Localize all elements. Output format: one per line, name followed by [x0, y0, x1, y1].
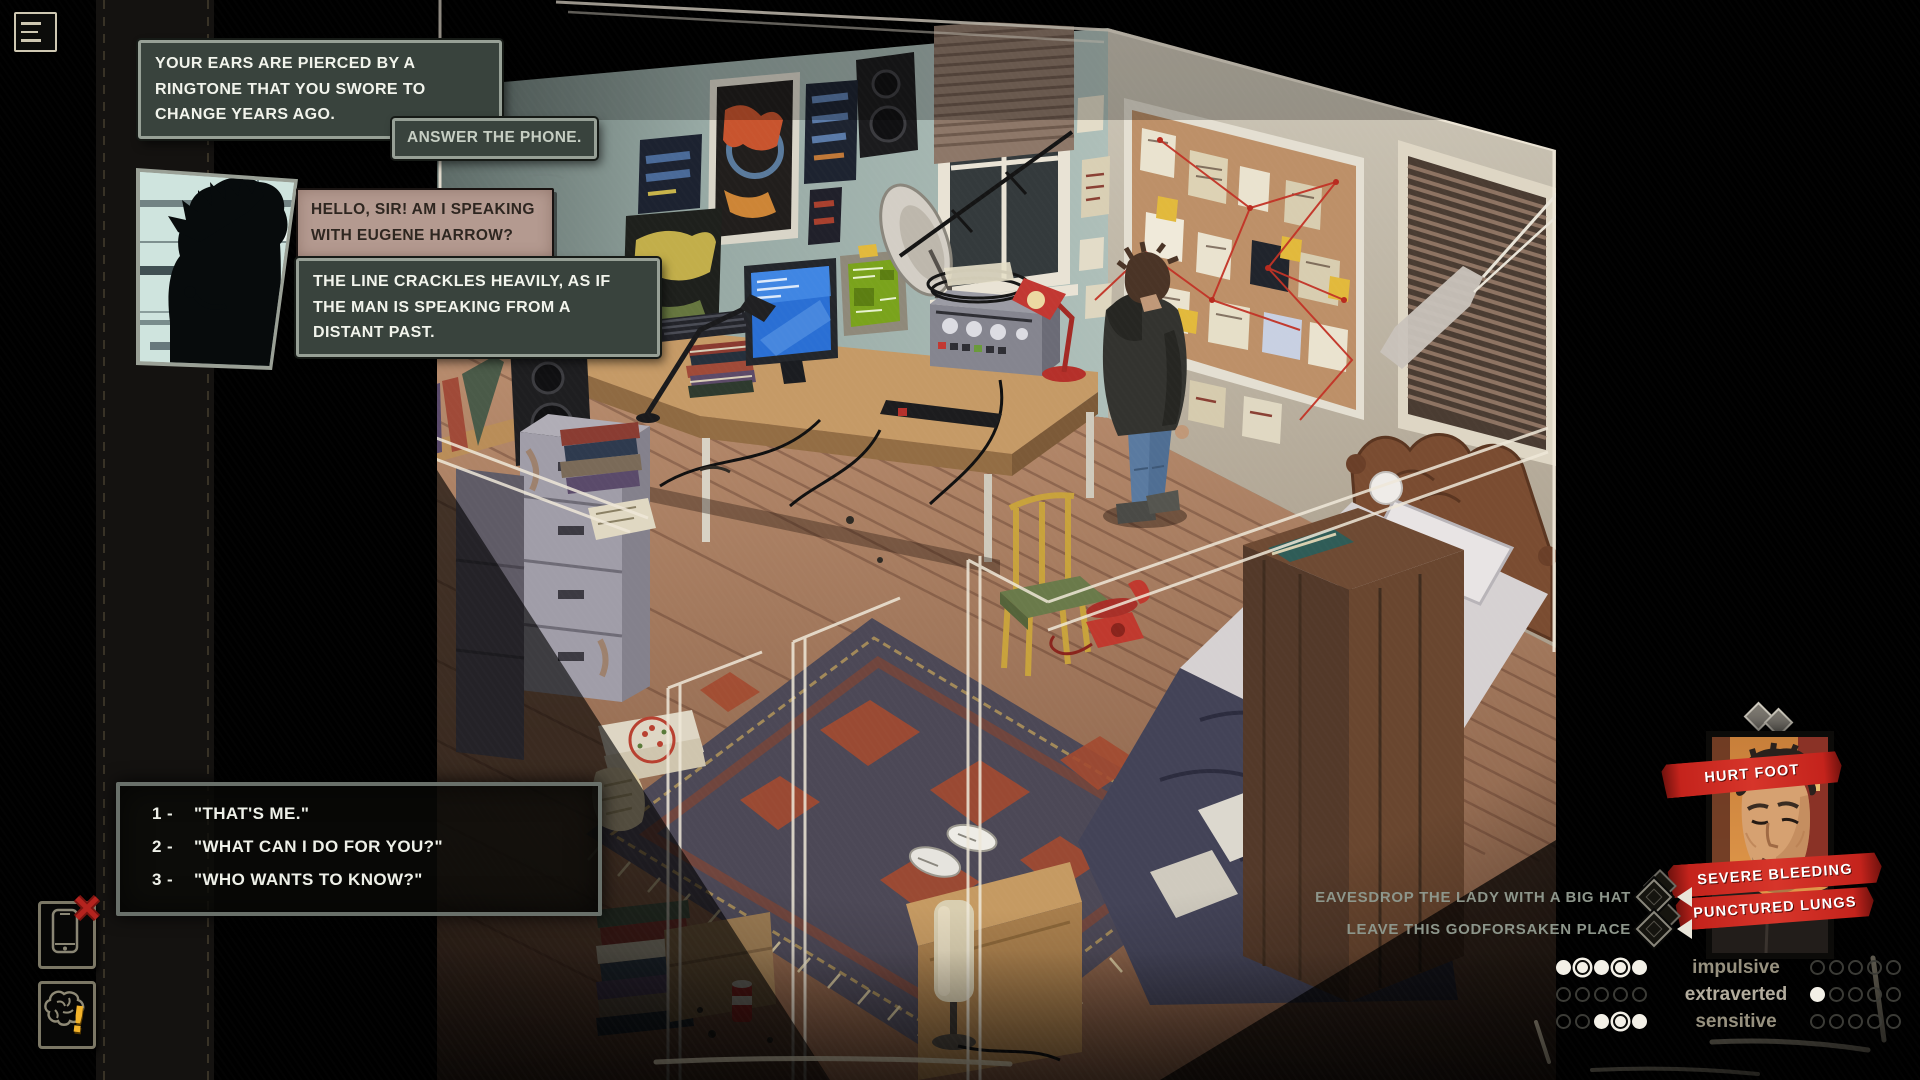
trait-label: sensitive	[1670, 1011, 1802, 1033]
game-screen: YOUR EARS ARE PIERCED BY A RINGTONE THAT…	[0, 0, 1920, 1080]
task-diamond-icon	[1636, 911, 1673, 948]
trait-dot-empty	[1556, 987, 1571, 1002]
option-key: 1 -	[152, 804, 182, 824]
task-item-leave[interactable]: LEAVE THIS GODFORSAKEN PLACE	[1347, 916, 1692, 942]
trait-dot-empty	[1810, 960, 1825, 975]
trait-row: extraverted	[1556, 981, 1920, 1008]
trait-dot-empty	[1575, 1014, 1590, 1029]
trait-label: extraverted	[1670, 984, 1802, 1006]
trait-dot-empty	[1829, 987, 1844, 1002]
task-pointer-icon	[1677, 887, 1692, 907]
trait-dot-empty	[1556, 1014, 1571, 1029]
trait-dot-empty	[1848, 1014, 1863, 1029]
narration-box-2: THE LINE CRACKLES HEAVILY, AS IF THE MAN…	[296, 258, 660, 357]
task-label: LEAVE THIS GODFORSAKEN PLACE	[1347, 921, 1631, 938]
trait-dot-empty	[1867, 1014, 1882, 1029]
trait-dot-empty	[1829, 960, 1844, 975]
action-prompt: ANSWER THE PHONE.	[392, 118, 597, 159]
trait-dots-left	[1556, 1014, 1670, 1029]
trait-dots-left	[1556, 960, 1670, 975]
trait-dot-empty	[1632, 987, 1647, 1002]
dialogue-option-1[interactable]: 1 - "THAT'S ME."	[152, 804, 309, 824]
trait-dot-ringed	[1613, 1014, 1628, 1029]
window-blinds-right	[1398, 140, 1556, 466]
trait-dot-filled	[1594, 1014, 1609, 1029]
option-text: "WHAT CAN I DO FOR YOU?"	[194, 837, 443, 857]
trait-dot-empty	[1867, 987, 1882, 1002]
trait-dot-empty	[1829, 1014, 1844, 1029]
trait-row: sensitive	[1556, 1008, 1920, 1035]
trait-dot-empty	[1810, 1014, 1825, 1029]
task-item-eavesdrop[interactable]: EAVESDROP THE LADY WITH A BIG HAT	[1315, 884, 1692, 910]
personality-traits-panel: impulsive extraverted sensitive	[1556, 954, 1920, 1035]
x-badge	[72, 893, 102, 923]
trait-dots-right	[1810, 987, 1920, 1002]
option-key: 2 -	[152, 837, 182, 857]
trait-dot-empty	[1886, 987, 1901, 1002]
trait-dot-empty	[1886, 1014, 1901, 1029]
task-pointer-icon	[1677, 919, 1692, 939]
trait-dot-filled	[1632, 1014, 1647, 1029]
trait-dot-filled	[1632, 960, 1647, 975]
dialogue-options-panel: 1 - "THAT'S ME." 2 - "WHAT CAN I DO FOR …	[116, 782, 602, 916]
caller-dialogue-box: HELLO, SIR! AM I SPEAKING WITH EUGENE HA…	[296, 188, 554, 259]
option-key: 3 -	[152, 870, 182, 890]
trait-dot-filled	[1594, 960, 1609, 975]
option-text: "WHO WANTS TO KNOW?"	[194, 870, 423, 890]
trait-dot-filled	[1810, 987, 1825, 1002]
condition-label: HURT FOOT	[1704, 762, 1800, 786]
dialogue-option-3[interactable]: 3 - "WHO WANTS TO KNOW?"	[152, 870, 423, 890]
trait-dot-empty	[1867, 960, 1882, 975]
trait-dot-ringed	[1575, 960, 1590, 975]
trait-dot-ringed	[1613, 960, 1628, 975]
trait-dot-filled	[1556, 960, 1571, 975]
trait-dot-empty	[1575, 987, 1590, 1002]
trait-dot-empty	[1848, 987, 1863, 1002]
trait-dot-empty	[1613, 987, 1628, 1002]
condition-label: PUNCTURED LUNGS	[1693, 894, 1858, 921]
trait-dots-right	[1810, 1014, 1920, 1029]
trait-row: impulsive	[1556, 954, 1920, 981]
trait-dot-empty	[1848, 960, 1863, 975]
menu-button[interactable]	[14, 12, 57, 52]
trait-dot-empty	[1594, 987, 1609, 1002]
caller-portrait	[136, 168, 298, 370]
left-spine-panel	[96, 0, 214, 1080]
trait-dots-left	[1556, 987, 1670, 1002]
caller-silhouette-portrait	[140, 172, 294, 366]
trait-dots-right	[1810, 960, 1920, 975]
dialogue-option-2[interactable]: 2 - "WHAT CAN I DO FOR YOU?"	[152, 837, 443, 857]
task-label: EAVESDROP THE LADY WITH A BIG HAT	[1315, 889, 1631, 906]
option-text: "THAT'S ME."	[194, 804, 309, 824]
trait-label: impulsive	[1670, 957, 1802, 979]
desk-books	[686, 340, 756, 398]
trait-dot-empty	[1886, 960, 1901, 975]
condition-label: SEVERE BLEEDING	[1697, 861, 1854, 888]
